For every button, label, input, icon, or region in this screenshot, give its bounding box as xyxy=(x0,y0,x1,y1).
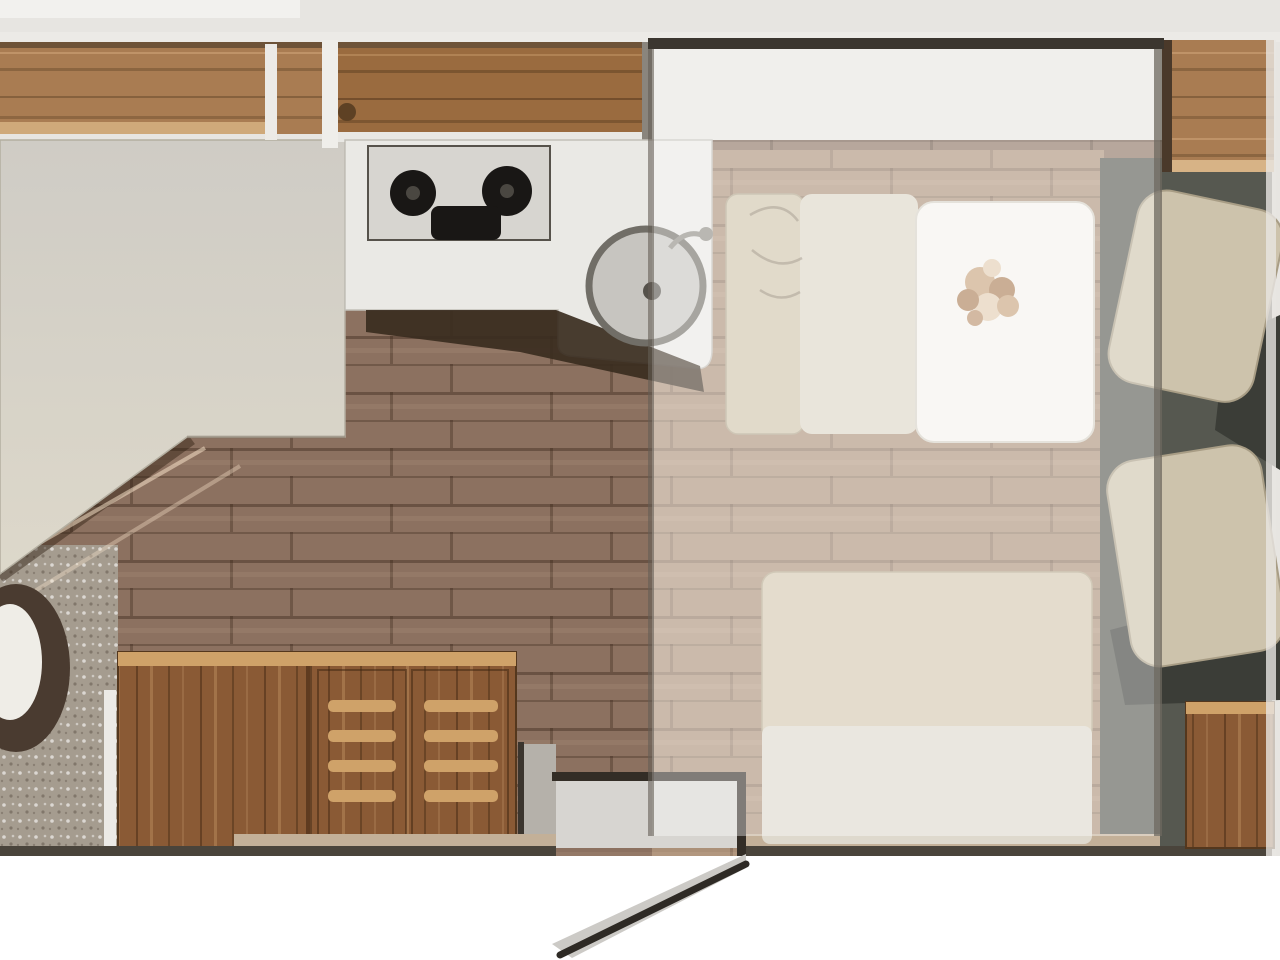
entry-cabinet xyxy=(518,742,556,848)
hob-two-burners xyxy=(368,146,550,240)
corner-cabinet-bottom-right xyxy=(1186,702,1274,848)
background-highlight xyxy=(0,0,300,18)
washroom-wall xyxy=(104,690,116,848)
floorplan-canvas xyxy=(0,0,1280,960)
overhead-cabinets-left xyxy=(0,44,322,140)
right-wall-line xyxy=(1266,40,1276,856)
drop-down-bed-overlay xyxy=(648,38,1164,836)
cabinet-gap xyxy=(322,40,338,148)
wooden-sideboard xyxy=(118,652,516,848)
caravan-floorplan xyxy=(0,0,1280,960)
overhead-cabinets-kitchen xyxy=(338,48,642,142)
corner-cabinet-top-right xyxy=(1162,40,1274,172)
bottom-wall-left xyxy=(0,846,556,856)
